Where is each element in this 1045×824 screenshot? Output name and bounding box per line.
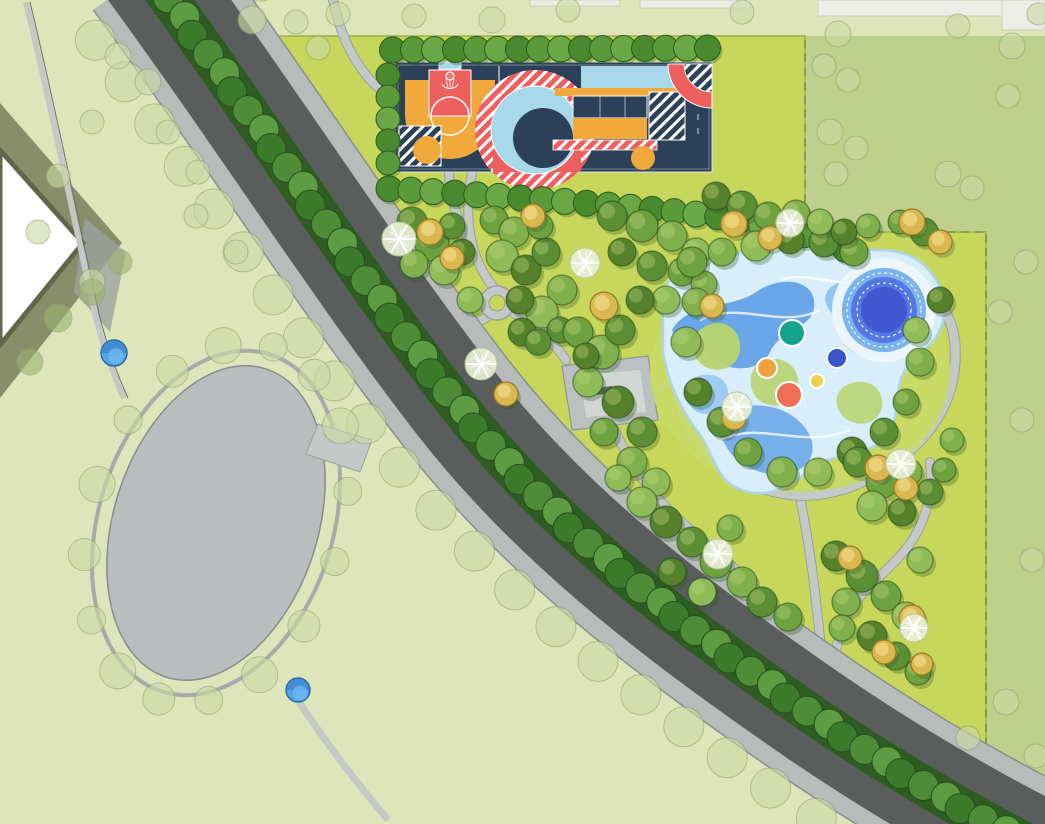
play-circle <box>827 348 847 368</box>
play-circle <box>779 320 805 346</box>
site-plan-canvas <box>0 0 1045 824</box>
pond <box>101 340 127 366</box>
pond <box>286 678 310 702</box>
court-art <box>395 62 712 182</box>
play-circle <box>776 382 802 408</box>
sports-court <box>395 62 712 182</box>
play-circle <box>810 374 824 388</box>
play-circle <box>757 358 777 378</box>
landscape-site-plan <box>0 0 1045 824</box>
